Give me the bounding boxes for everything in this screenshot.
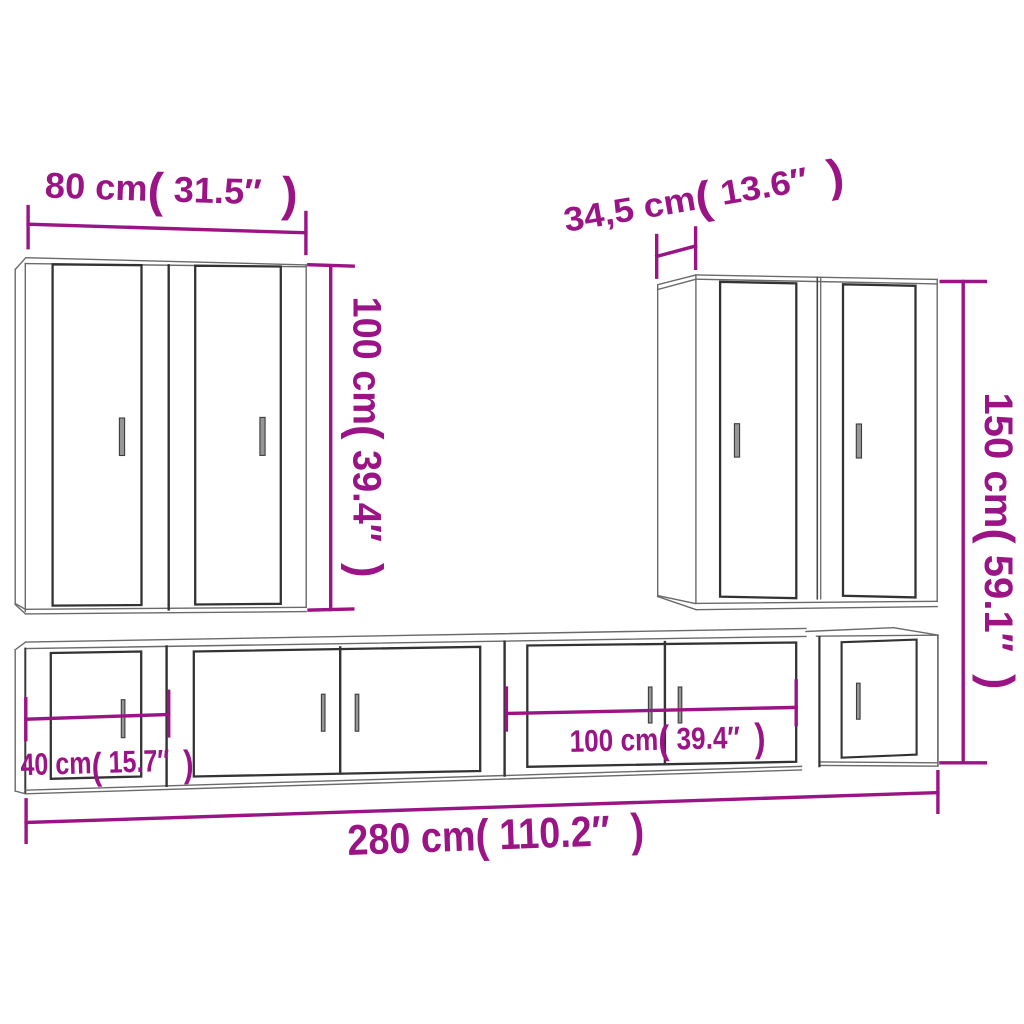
svg-text:100 cm( 39.4″ ): 100 cm( 39.4″ ) — [341, 297, 393, 578]
svg-text:150 cm( 59.1″ ): 150 cm( 59.1″ ) — [972, 393, 1024, 690]
